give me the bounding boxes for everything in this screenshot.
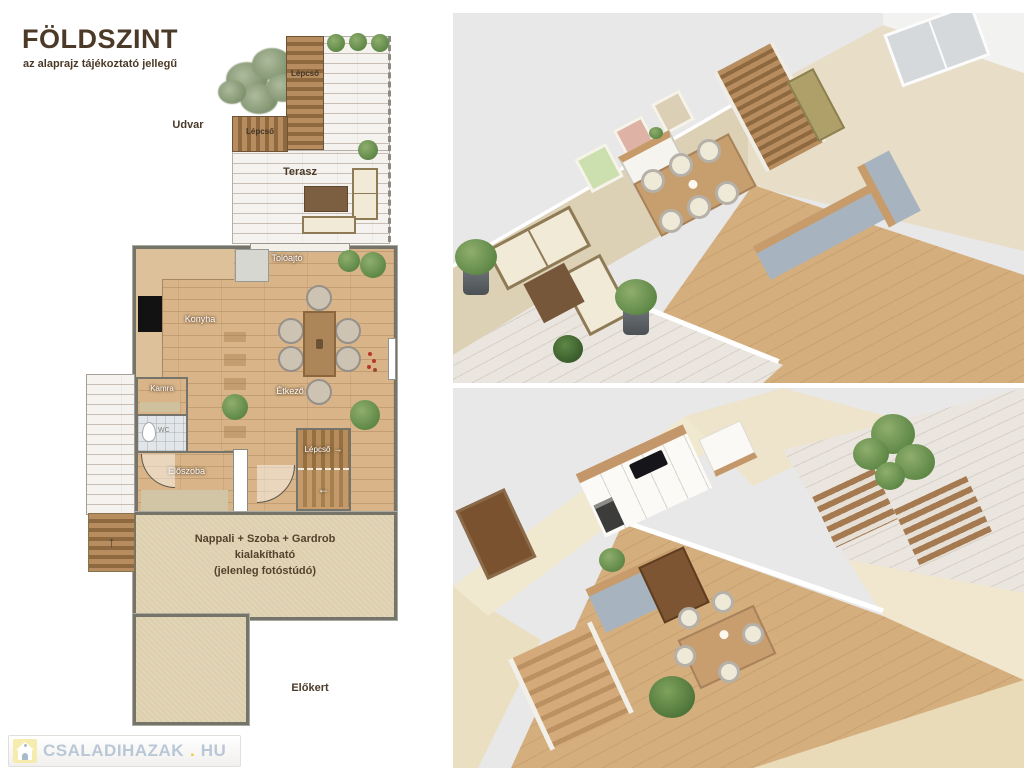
render-chair bbox=[742, 623, 764, 645]
dining-table bbox=[303, 311, 336, 377]
label-terasz: Terasz bbox=[268, 166, 332, 178]
fence-line bbox=[388, 36, 391, 242]
terrace-sofa bbox=[352, 168, 378, 220]
label-lepcso-inner: Lépcső bbox=[305, 445, 331, 454]
label-toloajto: Tolóajtó bbox=[252, 253, 322, 263]
watermark-tld: HU bbox=[201, 741, 227, 761]
house-icon bbox=[13, 739, 37, 763]
kitchen-counter-top bbox=[136, 249, 234, 280]
dining-chair bbox=[306, 285, 332, 311]
room-wc: WC bbox=[136, 414, 188, 453]
plant-icon bbox=[222, 394, 248, 420]
label-etkezo: Étkező bbox=[258, 386, 322, 396]
plant-icon bbox=[338, 250, 360, 272]
render-chair bbox=[674, 645, 696, 667]
garden-steps: ↑ bbox=[88, 513, 135, 572]
cooktop bbox=[629, 450, 668, 480]
render-chair bbox=[678, 607, 700, 629]
bush-icon bbox=[349, 33, 367, 51]
nappali-text-line2: kialakítható bbox=[136, 547, 394, 563]
palm-icon bbox=[649, 676, 695, 718]
flowers-icon bbox=[687, 178, 699, 190]
bush-icon bbox=[358, 140, 378, 160]
coffee-table bbox=[304, 186, 348, 212]
room-eloszoba: Előszoba bbox=[136, 451, 237, 516]
label-lepcso-top: Lépcső bbox=[287, 69, 323, 78]
dining-chair bbox=[335, 318, 361, 344]
label-konyha: Konyha bbox=[168, 314, 232, 324]
arrow-left-icon: ← bbox=[318, 482, 330, 496]
plant-icon bbox=[455, 239, 497, 275]
nappali-text-line1: Nappali + Szoba + Gardrob bbox=[136, 531, 394, 547]
plant-icon bbox=[615, 279, 657, 315]
page-subtitle: az alaprajz tájékoztató jellegű bbox=[23, 58, 177, 70]
side-deck bbox=[86, 374, 135, 515]
render-chair bbox=[687, 195, 711, 219]
outdoor-stairs-side: Lépcső bbox=[232, 116, 288, 152]
outdoor-stairs-top: Lépcső bbox=[286, 36, 324, 150]
render-chair bbox=[697, 139, 721, 163]
nappali-text-line3: (jelenleg fotóstúdó) bbox=[136, 563, 394, 579]
page-title: FÖLDSZINT bbox=[22, 24, 178, 55]
render-chair bbox=[718, 661, 740, 683]
deck-upper bbox=[322, 36, 390, 154]
plant-icon bbox=[360, 252, 386, 278]
toilet-icon bbox=[142, 422, 156, 442]
terrace-sofa bbox=[302, 216, 356, 234]
flowers-icon bbox=[368, 352, 372, 356]
door-swing-arc bbox=[141, 454, 175, 488]
bush-icon bbox=[327, 34, 345, 52]
dining-chair bbox=[278, 346, 304, 372]
flyer-canvas: FÖLDSZINT az alaprajz tájékoztató jelleg… bbox=[0, 0, 1024, 768]
watermark-name: CSALADIHAZAK bbox=[43, 741, 184, 761]
pantry-shelf bbox=[140, 402, 180, 412]
arrow-up-icon: ↑ bbox=[108, 534, 116, 551]
room-extension bbox=[133, 614, 249, 725]
room-nappali: Nappali + Szoba + Gardrob kialakítható (… bbox=[133, 512, 397, 620]
render-chair bbox=[712, 591, 734, 613]
window-gap bbox=[388, 338, 396, 380]
dining-chair bbox=[278, 318, 304, 344]
entry-mat bbox=[141, 490, 228, 511]
arrow-right-icon: → bbox=[333, 444, 342, 454]
plant-icon bbox=[599, 548, 625, 572]
label-udvar: Udvar bbox=[156, 119, 220, 131]
label-wc: WC bbox=[158, 427, 170, 434]
render-chair bbox=[715, 181, 739, 205]
bush-icon bbox=[371, 34, 389, 52]
plant-icon bbox=[553, 335, 583, 363]
flowers-icon bbox=[718, 629, 730, 641]
flowers-icon bbox=[649, 127, 663, 139]
label-kamra: Kamra bbox=[138, 384, 186, 393]
render-chair bbox=[669, 153, 693, 177]
render-3d-bottom bbox=[453, 388, 1024, 768]
label-elokert: Előkert bbox=[278, 682, 342, 694]
room-kamra: Kamra bbox=[136, 377, 188, 416]
doorway-gap bbox=[233, 449, 248, 515]
watermark-badge: CSALADIHAZAK.HU bbox=[8, 735, 241, 767]
watermark-dot: . bbox=[190, 741, 195, 761]
render-chair bbox=[641, 169, 665, 193]
label-lepcso-side: Lépcső bbox=[233, 127, 287, 136]
render-chair bbox=[659, 209, 683, 233]
interior-stairs: Lépcső → ← bbox=[296, 428, 351, 511]
render-3d-top bbox=[453, 13, 1024, 383]
tree-icon bbox=[853, 410, 943, 500]
stove bbox=[138, 296, 162, 332]
dining-chair bbox=[335, 346, 361, 372]
plant-icon bbox=[350, 400, 380, 430]
candle-icon bbox=[316, 339, 323, 349]
